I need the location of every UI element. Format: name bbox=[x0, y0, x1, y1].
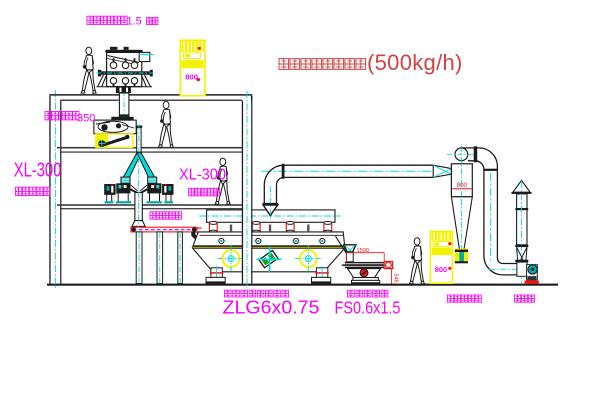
svg-text:XL-300: XL-300 bbox=[179, 166, 226, 183]
svg-text:800: 800 bbox=[456, 182, 467, 189]
svg-text:546: 546 bbox=[393, 274, 399, 283]
svg-text:(500kg/h): (500kg/h) bbox=[367, 50, 463, 75]
svg-text:XL-300: XL-300 bbox=[14, 159, 62, 181]
svg-text:ZLG6x0.75: ZLG6x0.75 bbox=[223, 298, 320, 318]
svg-text:800: 800 bbox=[185, 73, 198, 82]
svg-text:1.5: 1.5 bbox=[127, 16, 142, 28]
svg-text:800: 800 bbox=[435, 265, 447, 274]
svg-text:1500: 1500 bbox=[357, 248, 369, 254]
svg-text:FS0.6x1.5: FS0.6x1.5 bbox=[335, 298, 401, 318]
svg-text:350: 350 bbox=[77, 113, 95, 125]
